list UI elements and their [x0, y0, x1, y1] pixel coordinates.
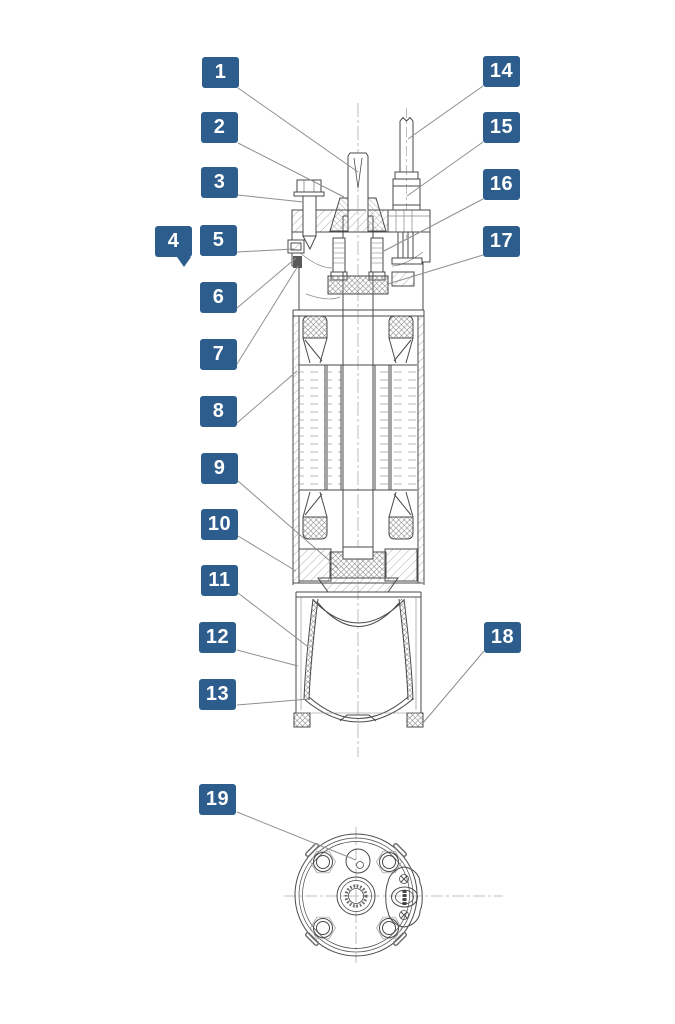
callout-14: 14 [483, 56, 520, 87]
callout-15: 15 [483, 112, 520, 143]
callout-13: 13 [199, 679, 236, 710]
leader-line-19 [237, 812, 356, 860]
leader-line-7 [237, 266, 298, 364]
leader-line-1 [238, 88, 358, 172]
callout-2: 2 [201, 112, 238, 143]
leader-line-8 [237, 371, 297, 423]
callout-11: 11 [201, 565, 238, 596]
leader-line-11 [238, 593, 307, 646]
top-port [346, 849, 370, 873]
callout-12: 12 [199, 622, 236, 653]
callout-17: 17 [483, 226, 520, 257]
lower-bearing [293, 547, 423, 592]
callout-1: 1 [202, 57, 239, 88]
callout-16: 16 [483, 169, 520, 200]
leader-line-3 [238, 195, 303, 202]
pump-bottom-view [295, 834, 422, 956]
callout-3: 3 [201, 167, 238, 198]
callout-4: 4 [155, 226, 192, 257]
leader-lines [237, 86, 484, 860]
leader-line-12 [237, 650, 298, 666]
callout-6: 6 [200, 282, 237, 313]
diagram-stage: 12345678910111213141516171819 [0, 0, 675, 1024]
leader-line-13 [237, 699, 309, 705]
technical-drawing [0, 0, 675, 1024]
callout-18: 18 [484, 622, 521, 653]
callout-7: 7 [200, 339, 237, 370]
leader-line-15 [407, 142, 483, 196]
leader-line-14 [408, 86, 483, 139]
leader-line-17 [388, 255, 483, 284]
callout-5: 5 [200, 225, 237, 256]
callout-10: 10 [201, 509, 238, 540]
callout-8: 8 [200, 396, 237, 427]
pump-casing [294, 592, 423, 727]
leader-line-5 [237, 249, 294, 252]
callout-19: 19 [199, 784, 236, 815]
leader-line-10 [238, 536, 296, 571]
callout-9: 9 [201, 453, 238, 484]
power-cable [400, 118, 413, 173]
pump-cross-section [288, 118, 430, 728]
leader-line-18 [423, 651, 484, 723]
